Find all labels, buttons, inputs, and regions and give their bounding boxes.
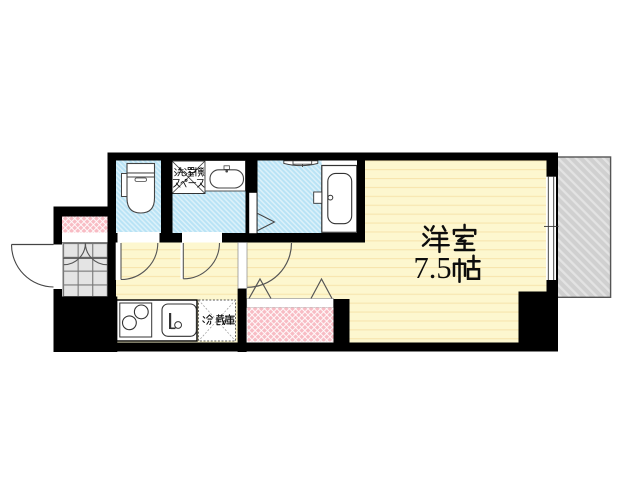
svg-text:7.5: 7.5 [414, 251, 452, 285]
